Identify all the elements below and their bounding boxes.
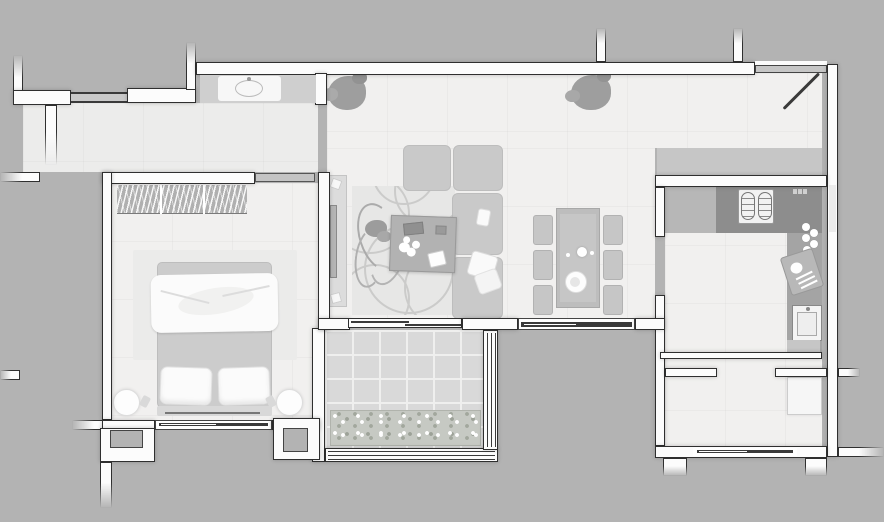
floor-plan (0, 0, 884, 522)
wall-kitchen-bottom (660, 352, 822, 359)
wall-top-left-a (13, 90, 71, 105)
kitchen-sink (792, 305, 822, 341)
balcony-planter (330, 410, 481, 446)
wall-utility-top-right (775, 368, 827, 377)
bedroom-pier-left-inset (110, 430, 143, 448)
wall-top-main (196, 62, 755, 75)
flower-bouquet (412, 241, 420, 249)
bed-headboard (157, 406, 272, 416)
wall-kitchen-top (655, 175, 827, 187)
nightstand-left (113, 389, 140, 416)
dining-chair (533, 285, 553, 315)
window-right-wall (829, 185, 836, 232)
dining-chair (533, 215, 553, 245)
hall-closet-band (657, 148, 822, 175)
table-dot (566, 253, 570, 257)
bedroom-pier-right-inset (283, 428, 308, 452)
window-top-left (71, 92, 127, 103)
wall-bedroom-top (102, 172, 255, 184)
wardrobe-divider (160, 185, 162, 214)
small-tray (435, 225, 446, 234)
entry-hall-floor (23, 103, 318, 172)
basin-faucet (247, 77, 251, 81)
fruit-plate (565, 271, 587, 293)
dining-chair (603, 285, 623, 315)
table-centerpiece (577, 247, 587, 257)
table-dot (590, 251, 594, 255)
counter-end (787, 340, 820, 352)
wall-living-bottom-a (318, 318, 350, 330)
wall-living-left (318, 172, 330, 330)
balcony-sliding-door (348, 318, 462, 328)
bedroom-pocket-door (255, 173, 315, 182)
sofa-cushion (403, 145, 451, 191)
washer (787, 377, 822, 415)
book-stack (403, 222, 424, 236)
coffee-table (389, 215, 457, 273)
cooktop (738, 189, 774, 224)
bed-headboard-line (165, 412, 260, 414)
faucet (806, 307, 810, 311)
flower-bouquet (407, 247, 416, 256)
dining-chair (533, 250, 553, 280)
wall-stub-bottom-2 (805, 458, 827, 476)
window-bedroom (155, 420, 272, 430)
wall-bedroom-left-lower (100, 462, 112, 508)
wall-stub-left-mid (0, 370, 20, 380)
burner (758, 192, 772, 220)
flower-bouquet (403, 236, 410, 243)
counter-switches (793, 189, 807, 194)
jar (810, 240, 818, 248)
wall-kitchen-left-upper (655, 187, 665, 237)
balcony-railing-bottom (325, 448, 498, 462)
jar (802, 223, 810, 231)
dining-table (556, 208, 600, 308)
kitchen-counter-top-left (665, 187, 716, 233)
wall-bedroom-left (102, 172, 112, 420)
wall-hall-left (45, 105, 57, 165)
notebook (427, 250, 447, 268)
jar (802, 234, 810, 242)
tv (330, 205, 337, 278)
dining-chair (603, 215, 623, 245)
wall-stub-right-2 (838, 447, 884, 457)
bed-pillow-left (159, 366, 212, 406)
balcony-railing-right (483, 330, 498, 450)
dining-chair (603, 250, 623, 280)
wall-utility-top-left (665, 368, 717, 377)
jar (810, 229, 818, 237)
window-dining (518, 318, 635, 330)
nightstand-right (276, 389, 303, 416)
wardrobe (117, 185, 247, 214)
wall-stub-hall-living (315, 73, 327, 105)
wall-top-left-b (127, 88, 196, 103)
wall-stub-right-1 (838, 368, 860, 377)
wall-stub-left-upper (0, 172, 40, 182)
sofa-cushion (453, 145, 503, 191)
entrance-threshold (755, 65, 827, 73)
wall-living-bottom-c (635, 318, 665, 330)
wall-stub-top-3 (596, 28, 606, 62)
burner (741, 192, 755, 220)
wall-stub-top-4 (733, 28, 743, 62)
bed-pillow-right (217, 366, 270, 406)
wardrobe-divider (203, 185, 205, 214)
wall-stub-top-2 (186, 42, 196, 90)
wall-living-bottom-b (462, 318, 518, 330)
hall-basin (218, 76, 281, 101)
wall-right (827, 64, 838, 457)
potted-plant-right-leaf (565, 90, 580, 102)
window-utility (693, 448, 797, 456)
wall-stub-bottom-1 (663, 458, 687, 476)
